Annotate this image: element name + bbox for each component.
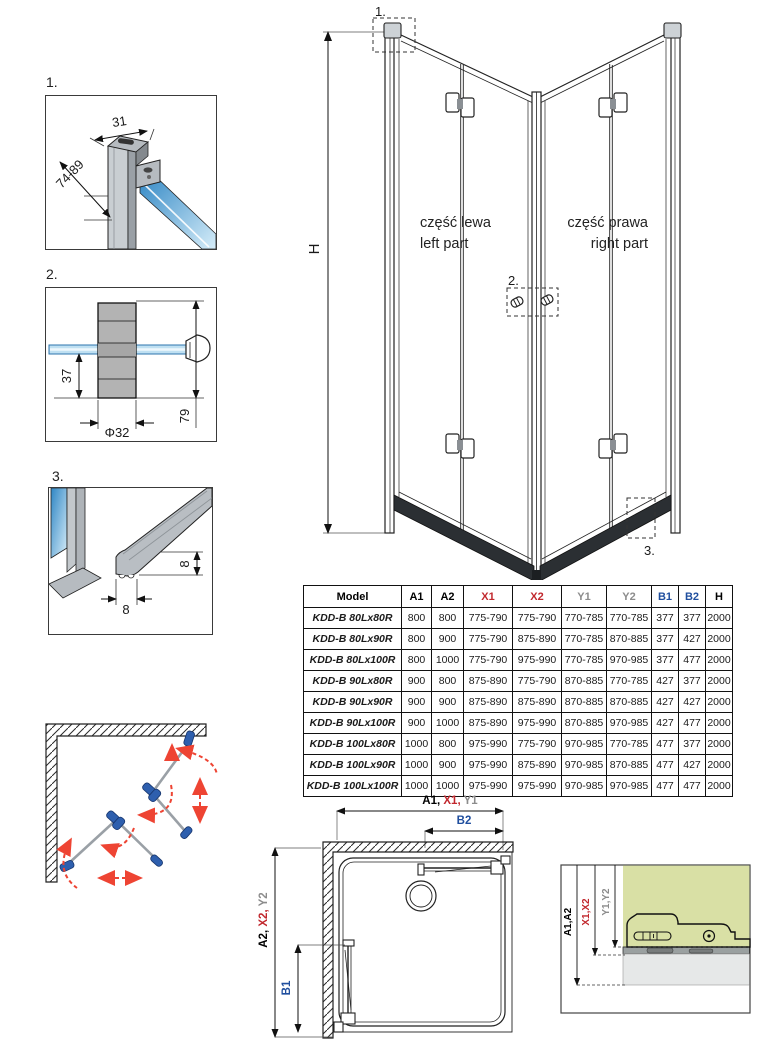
spec-table-row: KDD-B 100Lx90R1000900975-990875-890970-9… <box>304 755 733 776</box>
svg-text:A1, X1, Y1: A1, X1, Y1 <box>422 795 478 807</box>
folded-door-panels <box>68 744 188 864</box>
dim-37: 37 <box>59 354 79 398</box>
model-cell: KDD-B 90Lx80R <box>304 671 402 692</box>
svg-text:A1,A2: A1,A2 <box>563 907 574 936</box>
value-cell: 870-885 <box>607 755 652 776</box>
value-cell: 870-885 <box>562 692 607 713</box>
value-cell: 870-885 <box>562 713 607 734</box>
value-cell: 970-985 <box>607 713 652 734</box>
value-cell: 2000 <box>706 755 733 776</box>
value-cell: 2000 <box>706 671 733 692</box>
value-cell: 427 <box>679 755 706 776</box>
dim-diameter: Φ32 <box>80 400 154 440</box>
value-cell: 875-890 <box>464 692 513 713</box>
value-cell: 770-785 <box>607 608 652 629</box>
right-part-label-pl: część prawa <box>567 215 649 231</box>
door-bottom-corner <box>49 488 101 598</box>
value-cell: 477 <box>679 650 706 671</box>
left-part-label-pl: część lewa <box>420 215 492 231</box>
spec-table-row: KDD-B 90Lx100R9001000875-890975-990870-8… <box>304 713 733 734</box>
value-cell: 2000 <box>706 776 733 797</box>
spec-table-row: KDD-B 90Lx80R900800875-890775-790870-885… <box>304 671 733 692</box>
spec-table-header: B1 <box>652 586 679 608</box>
detail-3-drawing: 8 8 <box>48 487 213 635</box>
svg-text:31: 31 <box>111 113 128 130</box>
value-cell: 775-790 <box>464 650 513 671</box>
tray-strip <box>623 954 749 985</box>
profile-cap <box>664 23 681 38</box>
dim-79: 79 <box>177 301 196 428</box>
spec-table-header: B2 <box>679 586 706 608</box>
value-cell: 870-885 <box>562 671 607 692</box>
left-part-label-en: left part <box>420 236 468 252</box>
value-cell: 770-785 <box>607 671 652 692</box>
dim-74-89: 74-89 <box>53 157 112 220</box>
svg-text:A2, X2, Y2: A2, X2, Y2 <box>258 892 270 947</box>
value-cell: 975-990 <box>464 755 513 776</box>
center-corner-post <box>528 92 545 574</box>
plan-door-left <box>334 940 355 1032</box>
svg-text:H: H <box>306 244 323 255</box>
spec-table-header: Model <box>304 586 402 608</box>
value-cell: 970-985 <box>562 734 607 755</box>
right-wall-profile <box>664 23 681 533</box>
knob-section-drawing: 37 Φ32 79 <box>46 288 216 441</box>
value-cell: 1000 <box>402 734 432 755</box>
value-cell: 800 <box>402 629 432 650</box>
svg-text:79: 79 <box>177 409 192 423</box>
value-cell: 477 <box>652 776 679 797</box>
svg-text:Φ32: Φ32 <box>105 425 130 440</box>
spec-table: ModelA1A2X1X2Y1Y2B1B2H KDD-B 80Lx80R8008… <box>303 585 733 797</box>
value-cell: 377 <box>652 629 679 650</box>
knob-icon <box>510 296 524 309</box>
spec-table-row: KDD-B 80Lx80R800800775-790775-790770-785… <box>304 608 733 629</box>
value-cell: 900 <box>432 629 464 650</box>
value-cell: 427 <box>679 692 706 713</box>
value-cell: 1000 <box>402 755 432 776</box>
model-cell: KDD-B 80Lx80R <box>304 608 402 629</box>
value-cell: 900 <box>402 713 432 734</box>
value-cell: 2000 <box>706 734 733 755</box>
value-cell: 875-890 <box>513 629 562 650</box>
enclosure-elevation: H <box>295 5 780 580</box>
svg-text:B1: B1 <box>281 980 293 995</box>
value-cell: 427 <box>652 713 679 734</box>
value-cell: 427 <box>652 692 679 713</box>
value-cell: 477 <box>652 734 679 755</box>
detail-1-label: 1. <box>46 74 58 90</box>
value-cell: 2000 <box>706 713 733 734</box>
hinge-right-bottom <box>599 434 627 458</box>
model-cell: KDD-B 80Lx90R <box>304 629 402 650</box>
value-cell: 775-790 <box>513 734 562 755</box>
value-cell: 875-890 <box>464 671 513 692</box>
profile-strip <box>623 947 749 954</box>
spec-table-row: KDD-B 100Lx80R1000800975-990775-790970-9… <box>304 734 733 755</box>
model-cell: KDD-B 80Lx100R <box>304 650 402 671</box>
value-cell: 770-785 <box>562 608 607 629</box>
model-cell: KDD-B 90Lx90R <box>304 692 402 713</box>
spec-table-row: KDD-B 80Lx90R800900775-790875-890770-785… <box>304 629 733 650</box>
svg-text:Y1,Y2: Y1,Y2 <box>601 888 612 916</box>
value-cell: 477 <box>652 755 679 776</box>
hinge-right-top <box>599 93 627 117</box>
spec-table-header: X2 <box>513 586 562 608</box>
value-cell: 1000 <box>432 650 464 671</box>
spec-table-header: Y2 <box>607 586 652 608</box>
spec-table-header: Y1 <box>562 586 607 608</box>
spec-table-header: H <box>706 586 733 608</box>
plan-view: A1, X1, Y1 B2 <box>255 790 535 1044</box>
knob-cylinder <box>98 303 136 398</box>
spec-table-header: X1 <box>464 586 513 608</box>
value-cell: 900 <box>432 755 464 776</box>
value-cell: 377 <box>679 671 706 692</box>
hinge-knobs <box>59 730 195 872</box>
value-cell: 775-790 <box>464 608 513 629</box>
spec-table-header-row: ModelA1A2X1X2Y1Y2B1B2H <box>304 586 733 608</box>
spec-table-row: KDD-B 80Lx100R8001000775-790975-990770-7… <box>304 650 733 671</box>
svg-text:2.: 2. <box>508 273 519 288</box>
value-cell: 800 <box>432 734 464 755</box>
svg-text:X1,X2: X1,X2 <box>581 898 592 926</box>
value-cell: 377 <box>652 650 679 671</box>
svg-text:3.: 3. <box>644 543 655 558</box>
hinge-left-top <box>446 93 474 117</box>
value-cell: 875-890 <box>513 755 562 776</box>
detail-2-label: 2. <box>46 266 58 282</box>
detail-1-drawing: 31 74-89 <box>45 95 217 250</box>
spec-table-header: A1 <box>402 586 432 608</box>
value-cell: 477 <box>679 776 706 797</box>
value-cell: 970-985 <box>607 776 652 797</box>
shower-tray <box>333 852 512 1032</box>
value-cell: 870-885 <box>607 629 652 650</box>
svg-text:37: 37 <box>59 369 74 383</box>
dim-b1: B1 <box>281 945 345 1032</box>
value-cell: 900 <box>402 692 432 713</box>
svg-text:B2: B2 <box>457 815 472 827</box>
value-cell: 875-890 <box>464 713 513 734</box>
value-cell: 2000 <box>706 608 733 629</box>
value-cell: 377 <box>679 734 706 755</box>
seal-profile-bar <box>116 488 212 578</box>
value-cell: 870-885 <box>607 692 652 713</box>
detail-2-drawing: 37 Φ32 79 <box>45 287 217 442</box>
right-part-label-en: right part <box>591 236 648 252</box>
value-cell: 900 <box>432 692 464 713</box>
mounting-section-detail: Y1,Y2 X1,X2 A1,A2 <box>557 840 779 1044</box>
value-cell: 970-985 <box>607 650 652 671</box>
value-cell: 775-790 <box>513 608 562 629</box>
value-cell: 477 <box>679 713 706 734</box>
value-cell: 2000 <box>706 629 733 650</box>
corner-walls <box>46 724 206 882</box>
detail-3-label: 3. <box>50 468 66 484</box>
value-cell: 770-785 <box>562 650 607 671</box>
svg-text:1.: 1. <box>375 5 386 19</box>
spec-table-body: KDD-B 80Lx80R800800775-790775-790770-785… <box>304 608 733 797</box>
left-wall-profile <box>384 23 401 533</box>
spec-sheet-page: 1. <box>0 0 780 1044</box>
dim-width-8: 8 <box>101 579 152 617</box>
value-cell: 2000 <box>706 650 733 671</box>
wall-profile-section-drawing: 31 74-89 <box>46 96 216 249</box>
model-cell: KDD-B 90Lx100R <box>304 713 402 734</box>
svg-text:8: 8 <box>177 560 192 567</box>
value-cell: 800 <box>432 671 464 692</box>
value-cell: 770-785 <box>607 734 652 755</box>
value-cell: 800 <box>432 608 464 629</box>
value-cell: 900 <box>402 671 432 692</box>
drain <box>406 881 436 911</box>
bottom-seal-drawing: 8 8 <box>49 488 212 634</box>
folding-doors-schematic <box>28 712 248 932</box>
model-cell: KDD-B 100Lx80R <box>304 734 402 755</box>
value-cell: 377 <box>679 608 706 629</box>
value-cell: 800 <box>402 608 432 629</box>
value-cell: 377 <box>652 608 679 629</box>
spec-table-row: KDD-B 90Lx90R900900875-890875-890870-885… <box>304 692 733 713</box>
dim-height-left: A2, X2, Y2 <box>258 848 333 1037</box>
value-cell: 427 <box>679 629 706 650</box>
value-cell: 970-985 <box>562 755 607 776</box>
value-cell: 2000 <box>706 692 733 713</box>
value-cell: 800 <box>402 650 432 671</box>
value-cell: 770-785 <box>562 629 607 650</box>
value-cell: 775-790 <box>513 671 562 692</box>
value-cell: 975-990 <box>464 734 513 755</box>
value-cell: 1000 <box>432 713 464 734</box>
svg-text:8: 8 <box>122 602 129 617</box>
value-cell: 775-790 <box>464 629 513 650</box>
glass-highlight <box>145 185 209 247</box>
dim-height-H: H <box>306 32 394 533</box>
spec-table-header: A2 <box>432 586 464 608</box>
knob-icon <box>540 294 554 307</box>
value-cell: 875-890 <box>513 692 562 713</box>
value-cell: 427 <box>652 671 679 692</box>
value-cell: 975-990 <box>513 713 562 734</box>
value-cell: 975-990 <box>513 650 562 671</box>
profile-cap <box>384 23 401 38</box>
value-cell: 970-985 <box>562 776 607 797</box>
hinge-left-bottom <box>446 434 474 458</box>
model-cell: KDD-B 100Lx90R <box>304 755 402 776</box>
fold-direction-arrows <box>63 747 217 888</box>
